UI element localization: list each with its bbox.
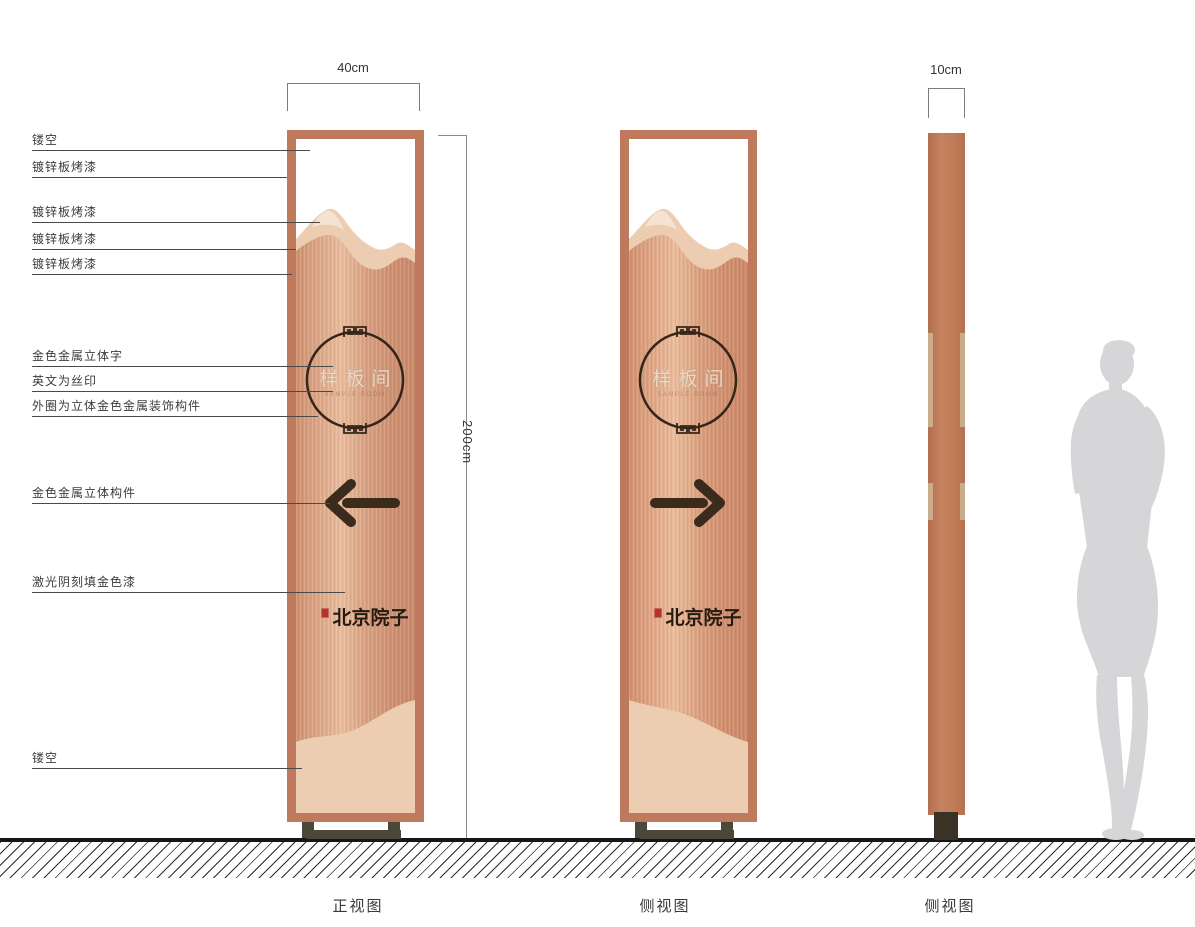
ground-hatch-pattern	[0, 842, 1195, 878]
brand-logo-text: 北京院子	[332, 603, 408, 630]
circle-english-subtext: SAMPLE ROOM	[633, 392, 743, 398]
side-view-1: 样板间 SAMPLE ROOM 北京院子	[620, 130, 757, 822]
human-scale-silhouette	[1035, 336, 1185, 842]
annotation-label: 金色金属立体构件	[32, 486, 136, 500]
caption-side-view-1: 侧视图	[639, 895, 690, 916]
signage-spec-drawing: 样板间 SAMPLE ROOM 北京院子	[0, 0, 1195, 927]
annotation-callout: 镂空	[32, 133, 310, 151]
brand-logo: 北京院子	[311, 603, 419, 629]
annotation-label: 镀锌板烤漆	[32, 232, 97, 246]
annotation-label: 金色金属立体字	[32, 349, 123, 363]
annotation-callout: 镂空	[32, 751, 302, 769]
circle-title: 样板间	[300, 364, 410, 391]
brand-logo: 北京院子	[644, 603, 752, 629]
column-protrusion	[928, 483, 933, 520]
side-view-2-column	[928, 133, 965, 815]
caption-side-view-2: 侧视图	[924, 895, 975, 916]
annotation-layer: 镂空镀锌板烤漆镀锌板烤漆镀锌板烤漆镀锌板烤漆金色金属立体字英文为丝印外圈为立体金…	[0, 0, 1195, 927]
front-view: 样板间 SAMPLE ROOM 北京院子	[287, 130, 424, 822]
front-base-bar	[307, 830, 401, 839]
column-protrusion	[960, 333, 965, 427]
annotation-callout: 外圈为立体金色金属装饰构件	[32, 399, 318, 417]
side1-base-bar	[640, 830, 734, 839]
annotation-label: 镀锌板烤漆	[32, 205, 97, 219]
annotation-label: 外圈为立体金色金属装饰构件	[32, 399, 201, 413]
height-dimension-label: 200cm	[460, 420, 475, 464]
annotation-label: 激光阴刻填金色漆	[32, 575, 136, 589]
left-arrow-icon	[323, 478, 408, 528]
annotation-callout: 镀锌板烤漆	[32, 232, 296, 250]
brand-logo-text: 北京院子	[665, 603, 741, 630]
annotation-label: 镀锌板烤漆	[32, 160, 97, 174]
annotation-callout: 镀锌板烤漆	[32, 160, 287, 178]
front-panel-graphic	[296, 139, 415, 813]
annotation-label: 镀锌板烤漆	[32, 257, 97, 271]
caption-front-view: 正视图	[332, 895, 383, 916]
annotation-callout: 镀锌板烤漆	[32, 205, 320, 223]
circle-english-subtext: SAMPLE ROOM	[300, 392, 410, 398]
annotation-label: 镂空	[32, 751, 58, 765]
height-dimension-tick	[438, 135, 466, 136]
right-arrow-icon	[642, 478, 727, 528]
width-dimension-label: 40cm	[337, 60, 369, 75]
depth-dimension-bracket	[928, 88, 965, 118]
side2-base-block	[934, 812, 958, 840]
width-dimension-bracket	[287, 83, 420, 111]
annotation-callout: 镀锌板烤漆	[32, 257, 292, 275]
annotation-callout: 金色金属立体构件	[32, 486, 330, 504]
annotation-label: 英文为丝印	[32, 374, 97, 388]
column-protrusion	[960, 483, 965, 520]
side1-panel-graphic	[629, 139, 748, 813]
circle-title: 样板间	[633, 364, 743, 391]
seal-stamp-icon	[654, 608, 662, 618]
depth-dimension-label: 10cm	[930, 62, 962, 77]
annotation-label: 镂空	[32, 133, 58, 147]
column-protrusion	[928, 333, 933, 427]
height-dimension-line	[466, 135, 467, 838]
seal-stamp-icon	[321, 608, 329, 618]
